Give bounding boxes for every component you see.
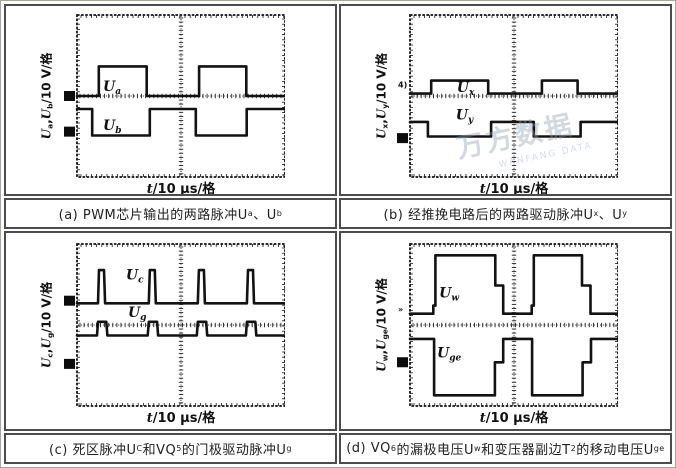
- panel-a-image-cell: UaUb Ua,Ub/10 V/格 t/10 μs/格: [4, 4, 337, 196]
- ground-marker: [397, 357, 408, 367]
- trace-label-Uy: Uy: [456, 107, 474, 125]
- oscillogram-c: UcUg: [63, 243, 285, 407]
- trace-label-Uge: Uge: [437, 345, 462, 363]
- channel-marker: »: [398, 305, 403, 314]
- x-axis-label-a: t/10 μs/格: [81, 178, 281, 196]
- y-axis-label-c: Uc,Ug/10 V/格: [37, 282, 54, 368]
- ground-marker: [64, 127, 75, 137]
- y-axis-label-b: Ux,Uy/10 V/格: [372, 53, 389, 139]
- caption-a: (a) PWM芯片输出的两路脉冲Ua、Ub: [4, 198, 337, 229]
- caption-b: (b) 经推挽电路后的两路驱动脉冲Ux、Uy: [339, 198, 672, 229]
- panel-b-image-cell: 4)UxUy Ux,Uy/10 V/格 t/10 μs/格 万方数据 WANFA…: [339, 4, 672, 196]
- trace-label-Uw: Uw: [439, 285, 459, 303]
- figure-grid: UaUb Ua,Ub/10 V/格 t/10 μs/格 4)UxUy Ux,Uy…: [4, 4, 672, 464]
- x-axis-label-b: t/10 μs/格: [414, 178, 614, 196]
- ground-marker: [64, 91, 75, 101]
- channel-marker: 4): [398, 81, 407, 90]
- trace-label-Ua: Ua: [103, 79, 121, 97]
- ground-marker: [397, 133, 408, 143]
- oscillogram-b: 4)UxUy: [396, 14, 618, 178]
- y-axis-label-a: Ua,Ub/10 V/格: [37, 53, 54, 140]
- figure-page: UaUb Ua,Ub/10 V/格 t/10 μs/格 4)UxUy Ux,Uy…: [0, 0, 676, 468]
- caption-d: (d) VQ6的漏极电压Uw和变压器副边T2的移动电压Uge: [339, 433, 672, 464]
- panel-c-image-cell: UcUg Uc,Ug/10 V/格 t/10 μs/格: [4, 231, 337, 431]
- x-axis-label-d: t/10 μs/格: [414, 407, 614, 426]
- panel-d-image-cell: »UwUge Uw,Uge/10 V/格 t/10 μs/格: [339, 231, 672, 431]
- trace-label-Uc: Uc: [126, 268, 144, 286]
- oscillogram-a: UaUb: [63, 14, 285, 178]
- oscillogram-d: »UwUge: [396, 243, 618, 407]
- x-axis-label-c: t/10 μs/格: [81, 407, 281, 426]
- y-axis-label-d: Uw,Uge/10 V/格: [372, 278, 389, 372]
- trace-label-Ug: Ug: [128, 305, 147, 323]
- ground-marker: [64, 359, 75, 369]
- ground-marker: [64, 296, 75, 306]
- trace-label-Ub: Ub: [103, 118, 122, 136]
- trace-label-Ux: Ux: [457, 80, 475, 98]
- caption-c: (c) 死区脉冲UC和VQ5的门极驱动脉冲Ug: [4, 433, 337, 464]
